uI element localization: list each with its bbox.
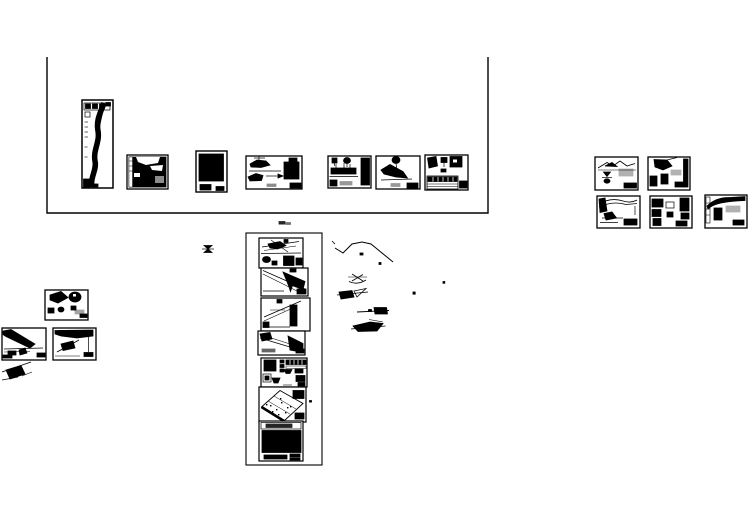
stack-sheet-5[interactable]	[261, 358, 307, 387]
sheet-bridge-profile[interactable]	[597, 196, 640, 228]
boat-symbol-2[interactable]	[351, 320, 386, 332]
jetty-symbol[interactable]	[357, 308, 389, 315]
point-mark-2[interactable]	[443, 282, 445, 284]
sheet-detail-b[interactable]	[648, 157, 690, 190]
stack-sheet-6[interactable]	[259, 387, 306, 422]
boat-symbol-1[interactable]	[337, 289, 368, 300]
stack-sheet-1[interactable]	[259, 238, 303, 268]
polyline-mark[interactable]	[332, 241, 393, 265]
cad-canvas[interactable]	[0, 0, 749, 530]
drawing-surface	[0, 0, 749, 530]
sheet-curve-band[interactable]	[705, 195, 747, 228]
stack-sheet-2[interactable]	[261, 268, 308, 296]
sheet-tug-plan[interactable]	[376, 156, 420, 189]
stack-sheet-4[interactable]	[258, 331, 305, 355]
sheet-mountain-profile[interactable]	[595, 157, 638, 190]
sheet-left-a[interactable]	[45, 290, 88, 320]
sheet-filled-portrait[interactable]	[196, 151, 227, 192]
arrow-bird-mark[interactable]	[2, 362, 32, 380]
stack-sheet-3[interactable]	[261, 298, 310, 331]
sheet-barge-plan[interactable]	[328, 156, 371, 188]
sheet-dark-map[interactable]	[127, 155, 168, 189]
sheet-details-table[interactable]	[425, 155, 468, 190]
sheet-left-b[interactable]	[2, 328, 46, 360]
sheet-left-c[interactable]	[53, 328, 96, 360]
point-mark-3[interactable]	[310, 401, 312, 403]
sheet-vessel-plan-a[interactable]	[246, 156, 302, 189]
stack-caption-mark[interactable]	[279, 222, 291, 225]
stack-sheet-7[interactable]	[259, 421, 303, 461]
sheet-river-plan-long[interactable]	[82, 100, 113, 188]
point-mark-1[interactable]	[413, 292, 415, 294]
bowtie-symbol[interactable]	[202, 246, 214, 253]
sail-boat-symbol[interactable]	[348, 274, 367, 283]
sheet-detail-d[interactable]	[650, 196, 692, 228]
